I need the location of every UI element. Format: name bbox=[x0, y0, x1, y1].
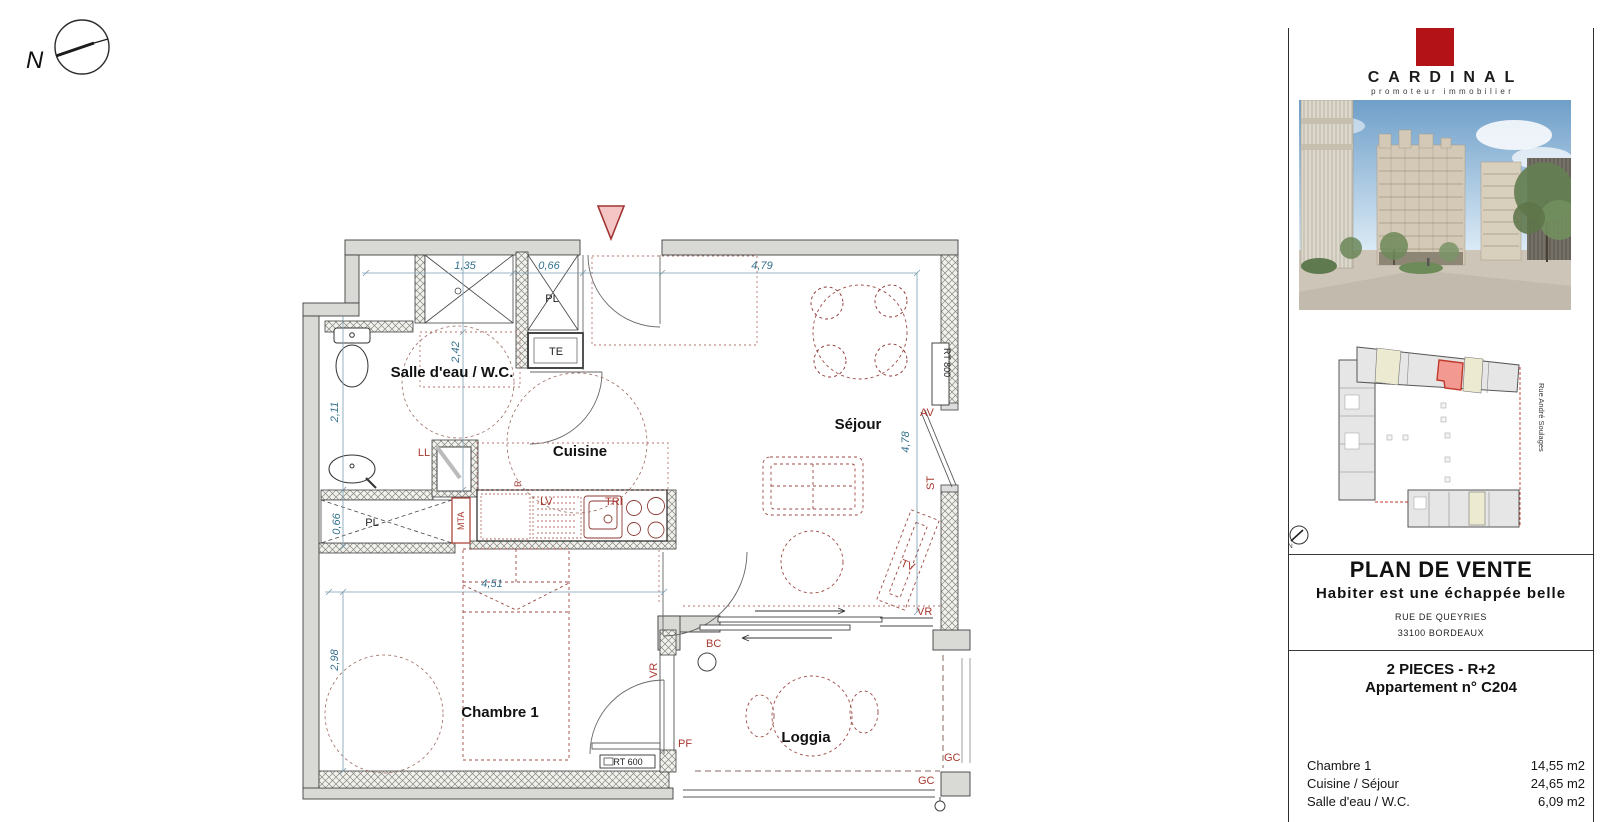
label-r: R bbox=[513, 480, 523, 487]
label-lv: LV bbox=[540, 496, 553, 508]
label-st: ST bbox=[925, 476, 937, 490]
unit-number: Appartement n° C204 bbox=[1289, 679, 1593, 696]
svg-text:N: N bbox=[1289, 543, 1293, 550]
unit-type: 2 PIECES - R+2 bbox=[1289, 661, 1593, 678]
area-value: 6,09 m2 bbox=[1538, 793, 1585, 811]
label-ll: LL bbox=[418, 447, 430, 459]
dim-sdb-h: 2,42 bbox=[450, 341, 462, 363]
area-value: 14,55 m2 bbox=[1531, 757, 1585, 775]
dim-pl-h: 0,66 bbox=[331, 512, 343, 534]
sliding-bay bbox=[700, 608, 933, 641]
room-label-sejour: Séjour bbox=[835, 416, 882, 433]
table-row: Chambre 1 14,55 m2 bbox=[1307, 757, 1585, 775]
label-bc: BC bbox=[706, 638, 721, 650]
rug-circle bbox=[781, 531, 843, 593]
area-value: 24,65 m2 bbox=[1531, 775, 1585, 793]
bedroom-window bbox=[592, 655, 674, 750]
label-pl-top: PL bbox=[545, 293, 558, 305]
dim-chambre-w: 4,51 bbox=[481, 578, 502, 590]
label-vr-sejour: VR bbox=[917, 606, 932, 618]
room-label-cuisine: Cuisine bbox=[553, 443, 607, 460]
label-rt800: RT 800 bbox=[942, 348, 952, 377]
brand-name: CARDINAL bbox=[1289, 69, 1593, 87]
dim-chambre-h: 2,98 bbox=[329, 648, 341, 671]
site-plan: Rue André Soulages N bbox=[1289, 335, 1557, 550]
dim-pl-w: 0,66 bbox=[538, 260, 560, 272]
label-gc-bottom: GC bbox=[918, 775, 935, 787]
area-label: Chambre 1 bbox=[1307, 757, 1371, 775]
label-mta: MTA bbox=[456, 512, 466, 530]
document-title: PLAN DE VENTE bbox=[1289, 557, 1593, 583]
dim-left-h: 2,11 bbox=[329, 402, 341, 424]
label-tv: TV bbox=[899, 558, 917, 574]
area-table: Chambre 1 14,55 m2 Cuisine / Séjour 24,6… bbox=[1307, 757, 1585, 811]
address-line2: 33100 BORDEAUX bbox=[1289, 628, 1593, 638]
title-block-panel: CARDINAL promoteur immobilier bbox=[1288, 28, 1594, 822]
chair bbox=[811, 287, 843, 319]
dim-sejour-h: 4,78 bbox=[900, 430, 912, 452]
street-label: Rue André Soulages bbox=[1537, 383, 1546, 452]
toilet-fixture bbox=[334, 328, 370, 387]
address-line1: RUE DE QUEYRIES bbox=[1289, 612, 1593, 622]
label-av: AV bbox=[920, 407, 935, 419]
cardinal-logo-icon bbox=[1416, 28, 1454, 66]
loggia-chair bbox=[746, 695, 774, 737]
label-pl-left: PL bbox=[365, 517, 378, 529]
loggia-chair bbox=[850, 691, 878, 733]
brand-tagline: promoteur immobilier bbox=[1289, 87, 1593, 96]
kitchen-counter bbox=[477, 490, 667, 541]
floor-plan-drawing: N bbox=[0, 0, 1260, 822]
chair bbox=[875, 344, 907, 376]
label-tri: TRI bbox=[605, 496, 623, 508]
compass-n-label: N bbox=[26, 47, 44, 74]
room-label-sdb: Salle d'eau / W.C. bbox=[391, 364, 514, 381]
room-label-chambre: Chambre 1 bbox=[461, 704, 539, 721]
chair bbox=[814, 345, 846, 377]
dim-sejour-w: 4,79 bbox=[751, 260, 772, 272]
dim-shower-w: 1,35 bbox=[454, 260, 476, 272]
label-rt600: RT 600 bbox=[613, 757, 642, 767]
table-row: Cuisine / Séjour 24,65 m2 bbox=[1307, 775, 1585, 793]
table-row: Salle d'eau / W.C. 6,09 m2 bbox=[1307, 793, 1585, 811]
dining-table bbox=[813, 285, 907, 379]
area-label: Salle d'eau / W.C. bbox=[1307, 793, 1410, 811]
washbasin-fixture bbox=[329, 455, 376, 488]
divider bbox=[1289, 650, 1593, 651]
wardrobe-symbol bbox=[463, 583, 569, 610]
room-label-loggia: Loggia bbox=[781, 729, 831, 746]
document-subtitle: Habiter est une échappée belle bbox=[1289, 585, 1593, 602]
label-gc-right: GC bbox=[944, 752, 961, 764]
north-compass-icon: N bbox=[26, 20, 109, 74]
area-label: Cuisine / Séjour bbox=[1307, 775, 1399, 793]
siteplan-compass-icon: N bbox=[1289, 526, 1308, 550]
building-photo bbox=[1299, 100, 1571, 310]
entry-marker-icon bbox=[598, 206, 624, 239]
divider bbox=[1289, 554, 1593, 555]
label-vr-chambre: VR bbox=[648, 663, 660, 678]
chair bbox=[875, 285, 907, 317]
label-pf: PF bbox=[678, 738, 692, 750]
label-te: TE bbox=[549, 346, 563, 358]
